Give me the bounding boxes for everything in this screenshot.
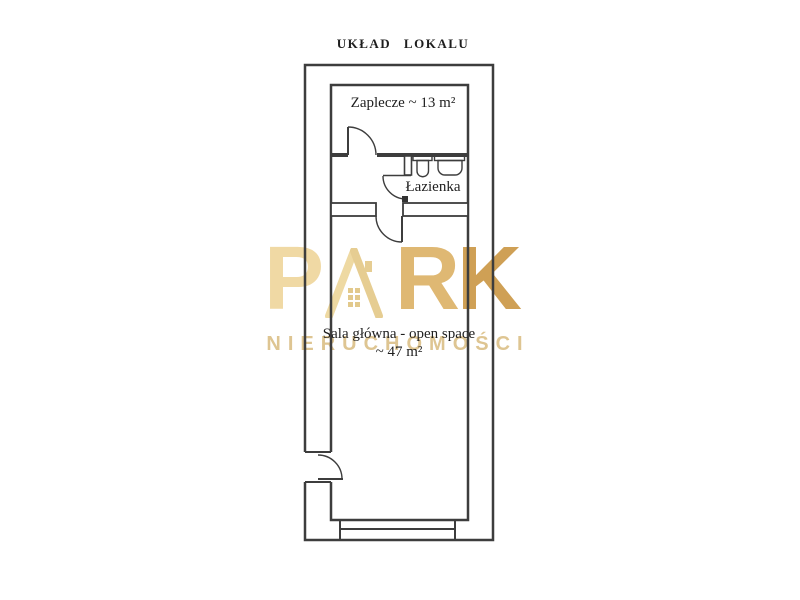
room-label-sala-line1: Sala główna - open space	[323, 326, 475, 343]
room-label-sala-line2: ~ 47 m²	[376, 344, 423, 361]
page-title: UKŁAD LOKALU	[337, 36, 470, 52]
floor-plan-page: P R K NIERUCHOMOŚCI	[0, 0, 800, 600]
room-label-lazienka: Łazienka	[406, 179, 461, 196]
plan-labels: UKŁAD LOKALU Zaplecze ~ 13 m² Łazienka S…	[0, 0, 800, 600]
room-label-zaplecze: Zaplecze ~ 13 m²	[351, 95, 456, 112]
